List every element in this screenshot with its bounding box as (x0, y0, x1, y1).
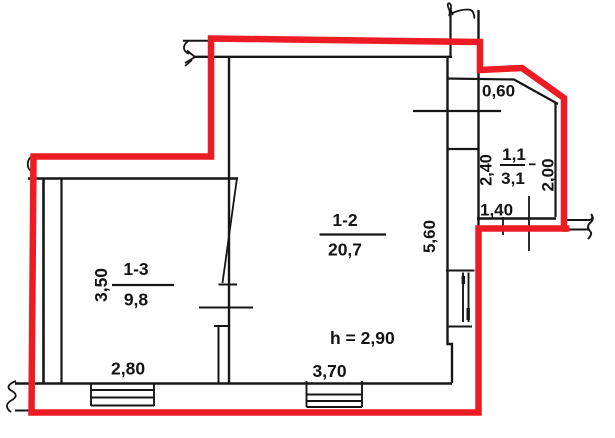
svg-text:20,7: 20,7 (328, 240, 362, 260)
svg-text:9,8: 9,8 (124, 290, 149, 310)
svg-text:1,40: 1,40 (480, 201, 513, 220)
svg-text:h = 2,90: h = 2,90 (330, 328, 395, 348)
svg-text:3,50: 3,50 (91, 268, 111, 302)
svg-text:3,1: 3,1 (501, 169, 525, 188)
svg-text:0,60: 0,60 (482, 82, 515, 101)
svg-text:2,80: 2,80 (111, 359, 145, 379)
svg-text:1-3: 1-3 (123, 259, 149, 279)
svg-text:1-2: 1-2 (332, 210, 358, 230)
svg-text:2,40: 2,40 (478, 154, 496, 186)
svg-text:2,00: 2,00 (539, 158, 558, 191)
svg-text:1,1: 1,1 (502, 145, 526, 164)
svg-text:5,60: 5,60 (420, 220, 439, 253)
svg-text:3,70: 3,70 (313, 361, 347, 381)
